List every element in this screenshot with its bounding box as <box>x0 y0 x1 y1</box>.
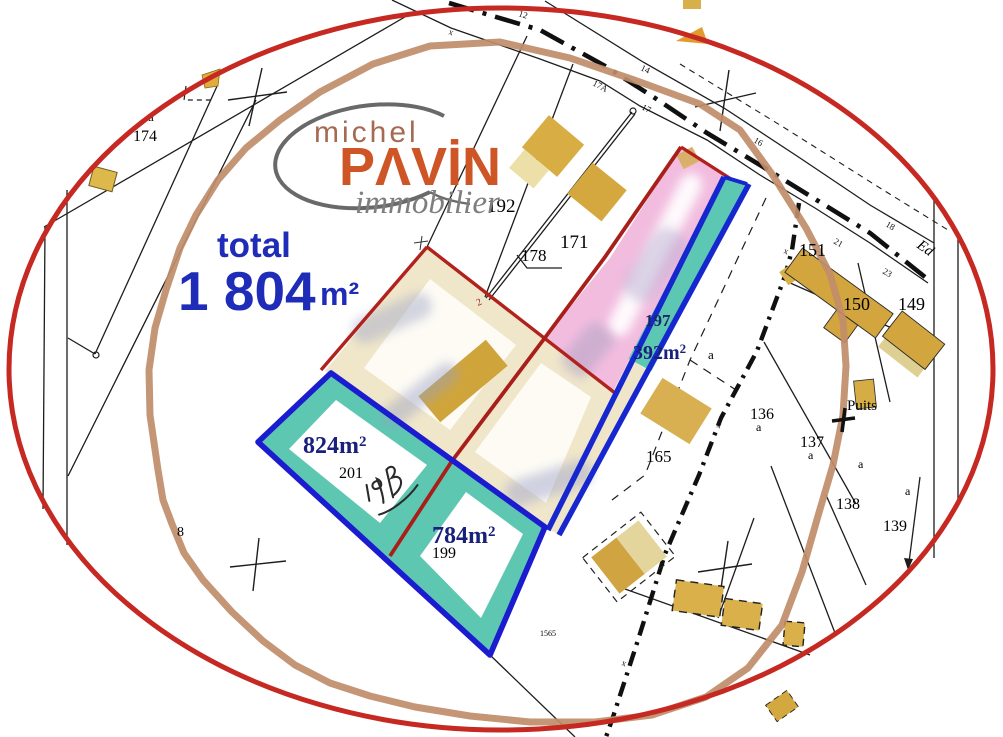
svg-text:a: a <box>756 420 762 434</box>
svg-text:1 804: 1 804 <box>178 260 316 322</box>
svg-text:a: a <box>858 457 864 471</box>
svg-text:197: 197 <box>645 311 671 330</box>
svg-text:784m2: 784m2 <box>432 523 496 549</box>
svg-text:8: 8 <box>177 525 184 540</box>
svg-text:150: 150 <box>843 294 870 314</box>
svg-text:178: 178 <box>521 246 547 265</box>
svg-text:824m2: 824m2 <box>303 433 367 459</box>
svg-text:151: 151 <box>799 240 826 260</box>
svg-text:139: 139 <box>883 518 907 535</box>
svg-text:165: 165 <box>646 447 672 466</box>
svg-text:138: 138 <box>836 496 860 513</box>
svg-text:392m2: 392m2 <box>633 341 686 364</box>
svg-text:201: 201 <box>339 465 363 482</box>
svg-text:m²: m² <box>320 276 359 312</box>
svg-text:171: 171 <box>560 232 589 253</box>
svg-text:1565: 1565 <box>540 629 556 638</box>
svg-text:149: 149 <box>898 294 925 314</box>
svg-text:174: 174 <box>133 128 157 145</box>
svg-text:a: a <box>708 347 714 362</box>
svg-text:immobilier: immobilier <box>355 185 500 221</box>
svg-text:136: 136 <box>750 406 774 423</box>
svg-text:a: a <box>808 448 814 462</box>
svg-text:Puits: Puits <box>847 398 877 414</box>
svg-text:a: a <box>905 484 911 498</box>
